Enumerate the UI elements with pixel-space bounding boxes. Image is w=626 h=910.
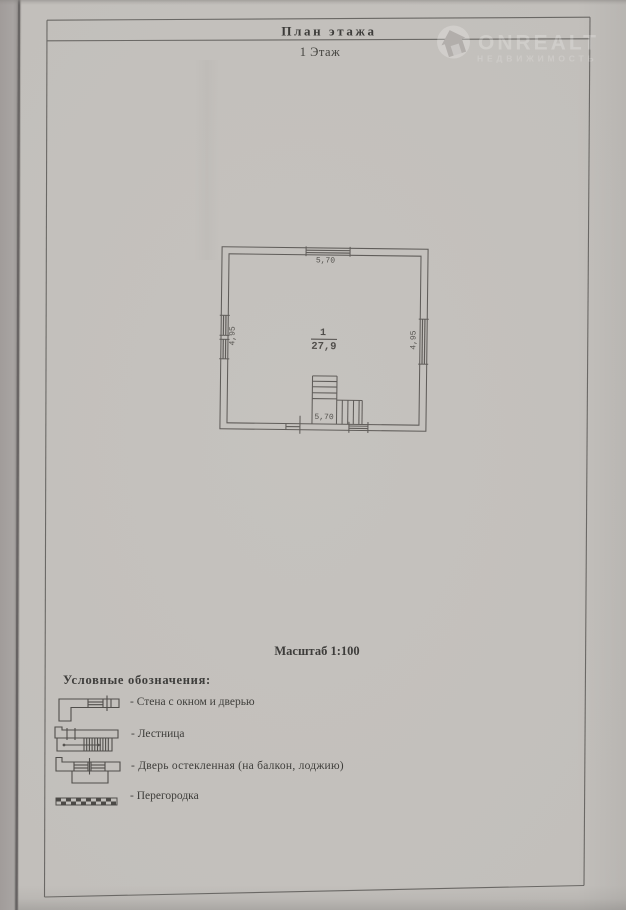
svg-text:- Лестница: - Лестница: [131, 728, 185, 740]
svg-text:ONREALT: ONREALT: [478, 32, 599, 55]
svg-text:4,95: 4,95: [409, 330, 418, 350]
svg-text:5,70: 5,70: [314, 413, 334, 422]
svg-text:НЕДВИЖИМОСТЬ: НЕДВИЖИМОСТЬ: [477, 54, 597, 64]
svg-text:5,70: 5,70: [316, 256, 336, 265]
svg-text:Условные обозначения:: Условные обозначения:: [63, 673, 211, 687]
svg-text:- Дверь остекленная (на балкон: - Дверь остекленная (на балкон, лоджию): [131, 760, 344, 772]
svg-text:- Перегородка: - Перегородка: [130, 790, 199, 802]
svg-text:4,95: 4,95: [228, 326, 237, 346]
svg-text:27,9: 27,9: [311, 341, 336, 353]
svg-text:Масштаб 1:100: Масштаб 1:100: [274, 644, 359, 658]
svg-text:1: 1: [320, 328, 326, 339]
svg-text:План этажа: План этажа: [281, 24, 376, 39]
svg-text:- Стена с окном и дверью: - Стена с окном и дверью: [130, 696, 255, 708]
svg-text:1 Этаж: 1 Этаж: [300, 45, 340, 59]
